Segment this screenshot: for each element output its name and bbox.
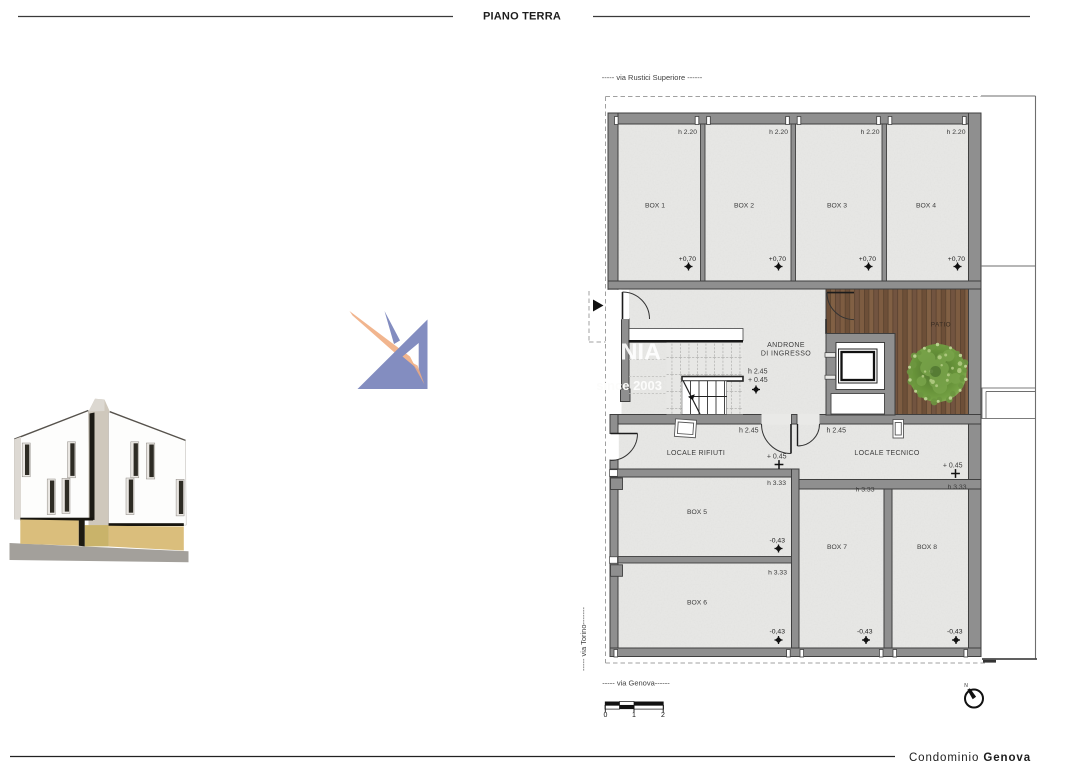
svg-text:N: N <box>964 683 968 689</box>
svg-text:+0,70: +0,70 <box>948 256 965 263</box>
svg-text:Condominio Genova: Condominio Genova <box>909 752 1031 764</box>
svg-text:BOX 2: BOX 2 <box>734 203 754 210</box>
svg-text:0: 0 <box>604 712 608 719</box>
svg-text:+0,70: +0,70 <box>859 256 876 263</box>
svg-text:ANDRONE: ANDRONE <box>767 342 805 349</box>
svg-text:BOX 4: BOX 4 <box>916 203 936 210</box>
svg-text:+0,70: +0,70 <box>679 256 696 263</box>
svg-text:-0,43: -0,43 <box>770 538 786 545</box>
svg-text:NIA: NIA <box>621 339 662 365</box>
svg-text:h 2.45: h 2.45 <box>827 427 847 434</box>
svg-text:-0,43: -0,43 <box>770 629 786 636</box>
svg-text:----- via Rustici Superiore -: ----- via Rustici Superiore ------ <box>602 73 703 82</box>
svg-text:BOX 1: BOX 1 <box>645 203 665 210</box>
svg-text:----- via Genova------: ----- via Genova------ <box>602 679 670 688</box>
svg-text:h 2.20: h 2.20 <box>861 129 880 136</box>
svg-text:BOX 3: BOX 3 <box>827 203 847 210</box>
svg-text:BOX 6: BOX 6 <box>687 600 707 607</box>
svg-text:h 2.20: h 2.20 <box>769 129 788 136</box>
svg-text:1: 1 <box>632 712 636 719</box>
svg-text:h 2.20: h 2.20 <box>678 129 697 136</box>
svg-text:h 2.20: h 2.20 <box>947 129 966 136</box>
svg-text:since 2003: since 2003 <box>596 378 662 393</box>
svg-text:+ 0.45: + 0.45 <box>767 454 787 461</box>
svg-text:h 3.33: h 3.33 <box>948 484 967 491</box>
svg-text:-0,43: -0,43 <box>947 629 963 636</box>
svg-text:BOX 8: BOX 8 <box>917 544 937 551</box>
svg-text:BOX 7: BOX 7 <box>827 544 847 551</box>
svg-text:h 3.33: h 3.33 <box>768 570 787 577</box>
svg-text:2: 2 <box>661 712 665 719</box>
svg-text:LOCALE TECNICO: LOCALE TECNICO <box>854 450 919 457</box>
svg-text:+ 0.45: + 0.45 <box>943 463 963 470</box>
svg-text:h 2.45: h 2.45 <box>739 427 759 434</box>
svg-text:LOCALE RIFIUTI: LOCALE RIFIUTI <box>667 450 725 457</box>
svg-text:h 3.33: h 3.33 <box>856 487 875 494</box>
svg-text:-0,43: -0,43 <box>857 629 873 636</box>
svg-text:BOX 5: BOX 5 <box>687 509 707 516</box>
svg-text:PIANO TERRA: PIANO TERRA <box>483 11 561 23</box>
svg-text:+0,70: +0,70 <box>769 256 786 263</box>
svg-text:h 2.45: h 2.45 <box>748 369 768 376</box>
svg-text:+ 0.45: + 0.45 <box>748 377 768 384</box>
svg-text:h 3.33: h 3.33 <box>767 480 786 487</box>
svg-text:PATIO: PATIO <box>931 322 951 329</box>
svg-text:DI INGRESSO: DI INGRESSO <box>761 351 811 358</box>
svg-text:----- via Torino-------: ----- via Torino------- <box>579 606 588 671</box>
